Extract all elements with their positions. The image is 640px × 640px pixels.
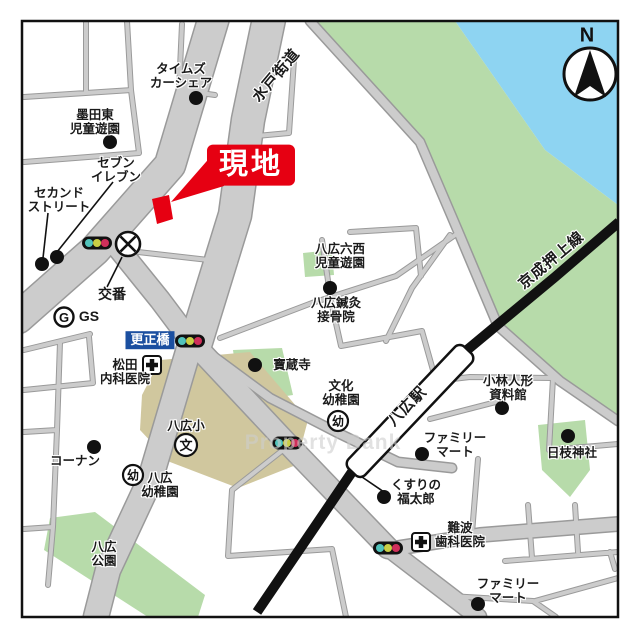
poi-dot-famima-center	[415, 447, 429, 461]
svg-text:文: 文	[179, 438, 193, 453]
poi-dot-famima-south	[471, 597, 485, 611]
poi-dot-hozoji	[248, 358, 262, 372]
label-kosei-bridge: 更正橋	[125, 331, 174, 349]
poi-dot-sumida-park	[103, 135, 117, 149]
poi-dot-times	[189, 91, 203, 105]
traffic-light-icon	[373, 542, 403, 555]
traffic-light-icon	[175, 335, 205, 348]
svg-text:幼: 幼	[332, 414, 344, 429]
poi-dot-konan	[87, 440, 101, 454]
map-canvas: G 文 幼 幼 タイムズ カーシェア 墨田東 児童遊園 セブン イレブン セカン…	[0, 0, 640, 640]
kindergarten-icon: 幼	[123, 465, 143, 485]
kindergarten-icon: 幼	[328, 411, 348, 431]
site-callout: 現地	[207, 145, 295, 186]
traffic-light-icon	[82, 237, 112, 250]
watermark: Property Bank	[245, 431, 402, 455]
poi-dot-fukutaro	[377, 490, 391, 504]
svg-text:幼: 幼	[127, 468, 139, 483]
map-drawing: G 文 幼 幼	[0, 0, 640, 640]
school-icon: 文	[175, 434, 197, 456]
poi-dot-kobayashi	[495, 401, 509, 415]
hospital-icon	[143, 356, 161, 374]
svg-text:G: G	[59, 310, 69, 325]
poi-dot-hie-shrine	[561, 429, 575, 443]
hospital-icon	[412, 533, 430, 551]
gas-station-icon: G	[55, 308, 74, 327]
poi-dot-rokunishi-park	[323, 281, 337, 295]
poi-dot-seven-eleven	[50, 250, 64, 264]
police-box-icon	[116, 232, 140, 256]
label-north: N	[580, 25, 594, 48]
compass-icon	[564, 48, 616, 100]
poi-dot-second-street	[35, 257, 49, 271]
